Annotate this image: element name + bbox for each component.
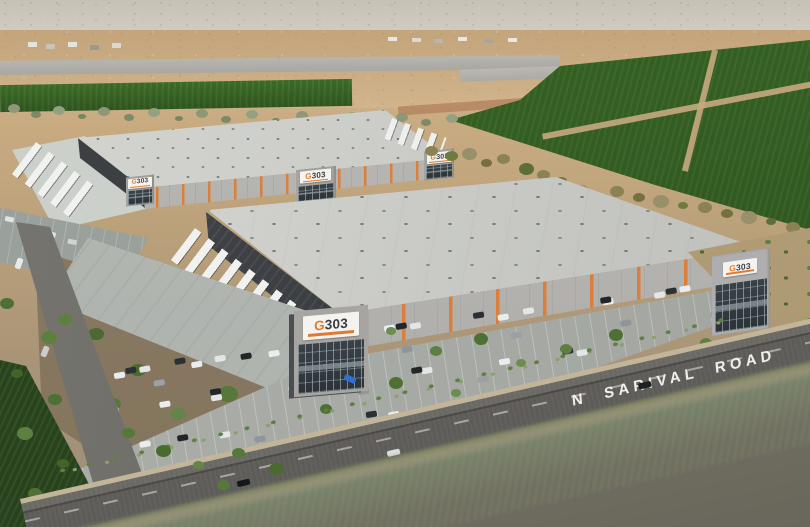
g303-sign: G303 [723, 258, 757, 278]
tree-row-side-road [0, 298, 14, 309]
trees-near-intersection [122, 428, 135, 438]
g303-sign: G303 [128, 177, 152, 190]
g303-sign-main: G303 [303, 312, 359, 341]
tree-row-east-boundary [610, 186, 624, 197]
curtainwall-glass [298, 339, 363, 393]
curtainwall-glass [128, 189, 153, 205]
distant-city [0, 0, 810, 34]
aerial-rendering: G303 G303 G303 G [0, 0, 810, 527]
dirt-path [542, 78, 810, 139]
distant-hangars [388, 37, 397, 41]
car [5, 216, 15, 223]
rear-entrance-tower-mid: G303 [296, 166, 336, 203]
dark-cars [125, 367, 137, 375]
silver-cars [153, 379, 165, 387]
distant-buildings [28, 42, 37, 47]
tree-cluster-between-buildings [425, 146, 438, 156]
curtainwall-glass [426, 164, 452, 180]
rear-entrance-tower-west: G303 [126, 175, 154, 207]
g303-sign: G303 [300, 168, 331, 183]
main-entrance-tower: G303 [294, 305, 368, 397]
tree-row-back [8, 104, 20, 113]
car-on-road [237, 479, 251, 488]
